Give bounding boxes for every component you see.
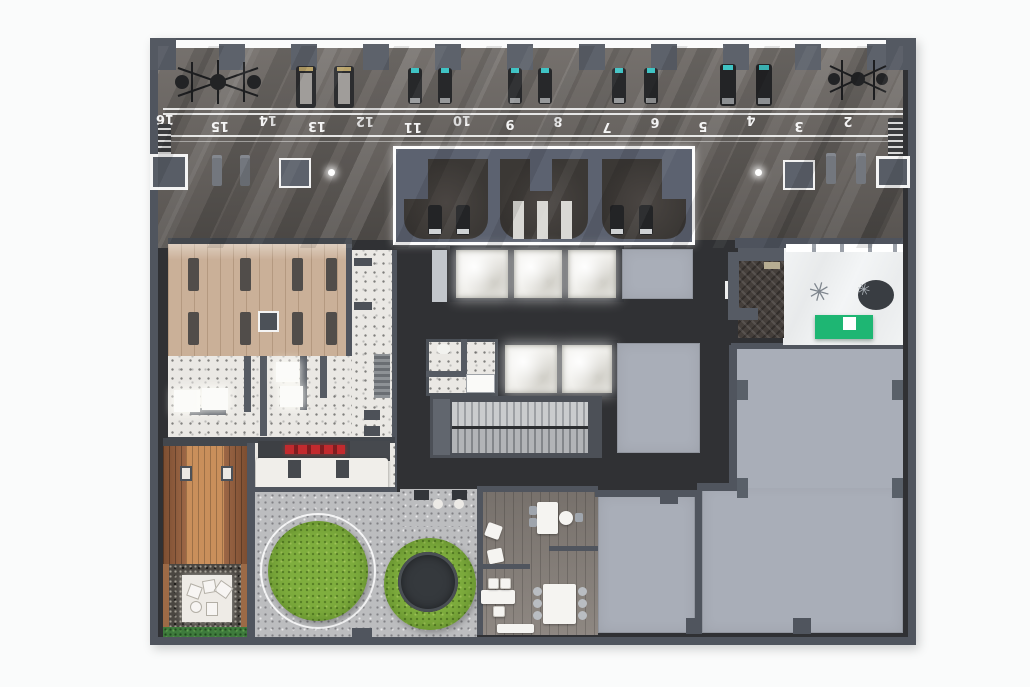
lane-number: 15 [209,118,231,133]
desk-chair [493,606,505,617]
wall-pilaster [892,478,903,498]
facade-pier [651,44,677,70]
lounge-partition [483,564,530,569]
spin-bike-icon [428,205,442,235]
bench-slot [326,312,337,345]
shower-room-wall [461,339,467,374]
lounge-chair-sketch [186,583,203,600]
glazing-mullion [812,244,816,252]
glazing-mullion [868,244,872,252]
deck-center-boards [186,446,224,564]
bench-slot [240,312,251,345]
lane-number: 4 [740,112,762,127]
corridor-bench [354,258,372,266]
vestibule-wall-foot [728,308,758,320]
deck-notch [221,466,233,481]
elevator-car [505,345,557,393]
outdoor-lounge-rug [182,575,232,622]
lease-space-small [598,495,695,633]
corridor-bench [364,410,380,420]
weight-bench-icon [856,156,866,184]
door-leaf [432,250,447,302]
shower-tray [466,374,495,393]
hedge-strip [163,627,249,637]
conference-chair [533,587,542,596]
exercise-mat [513,201,524,239]
facade-corner-right [886,38,916,70]
ceiling-light-dot [328,169,335,176]
lane-number: 5 [692,118,714,133]
wall-pilaster [737,478,748,498]
lounge-left-wall [477,489,483,635]
lease-space-large-upper [735,348,903,488]
bar-counter-leg [288,460,301,478]
door-leaf [725,281,728,299]
planter-box [414,490,429,500]
track-line [163,141,903,142]
lounge-chair-sketch [206,602,218,616]
toilet-icon [437,344,450,354]
glazing-mullion [893,244,897,252]
bench-slot [326,258,337,291]
lease-top-wall [595,490,698,497]
desk-chair [488,578,499,589]
work-desk [481,590,515,604]
chair [529,506,537,515]
stair-flight-down [452,429,588,453]
elevator-car [514,250,562,298]
stair-landing [433,399,450,455]
wall-alcove [876,156,910,188]
facade-pier [507,44,533,70]
bar-stool-row [285,445,345,454]
conference-chair [533,599,542,608]
lounge-chair-sketch [214,580,234,599]
lane-number: 8 [547,113,569,128]
exercise-mat [561,201,572,239]
conference-chair [578,611,587,620]
bench-slot [188,312,199,345]
chair [575,513,583,522]
credenza [497,624,534,633]
facade-pier [795,44,821,70]
lease-upper-left-wall [729,345,737,488]
lane-number: 2 [837,113,859,128]
weight-bench-icon [826,156,836,184]
studio-wall-block [530,159,552,191]
service-room [622,249,693,299]
vestibule-floor [738,260,784,338]
lease-space-large [702,485,903,633]
studio-wall-block [662,159,686,199]
facade-pier [435,44,461,70]
lawn-circle-large [268,521,368,621]
lounge-top-wall [477,486,598,492]
spin-bike-icon [639,205,653,235]
lane-number: 13 [306,118,328,133]
lane-number: 12 [354,113,376,128]
wall-pilaster [660,490,678,504]
cycling-studio [393,146,695,245]
lifting-platform [783,160,815,190]
lounge-chair-sketch [188,599,205,616]
vanity-counter [202,388,228,410]
weight-bench-icon [212,158,222,186]
locker-partition [244,356,251,412]
lounge-partition [549,546,598,551]
corridor-bench [354,302,372,310]
corridor-bench [364,426,380,436]
outdoor-stool [433,499,443,509]
bench-slot [292,258,303,291]
deck-notch [180,466,192,481]
cafe-table [537,502,558,534]
desk-chair [500,578,511,589]
wall-alcove [150,154,188,190]
chair [529,518,537,527]
elevator-car [456,250,508,298]
stairwell [430,396,602,458]
reception-desk [815,315,873,339]
lane-number: 14 [257,112,279,127]
studio-wall-block [404,159,428,199]
wall-pilaster [793,618,811,634]
mechanical-room [617,343,700,453]
lane-number: 6 [644,114,666,129]
conference-chair [578,599,587,608]
lease-divider-wall [695,490,702,633]
locker-partition [320,356,327,398]
corridor-steps [374,354,390,398]
bench-slot [240,258,251,291]
ceiling-light-dot [755,169,762,176]
bench-slot [292,312,303,345]
desk-monitor [843,317,856,330]
elevator-car [562,345,612,393]
floor-plan-canvas: 16 15 14 13 12 11 10 9 8 7 6 5 4 3 2 [0,0,1030,687]
conference-chair [533,611,542,620]
facade-pier [363,44,389,70]
spin-bike-icon [456,205,470,235]
weight-bench-icon [240,158,250,186]
wall-pilaster [737,380,748,400]
floor-box [258,311,279,332]
outdoor-stool [454,499,464,509]
lane-number: 7 [596,119,618,134]
wall-pilaster [892,380,903,400]
lobby-entry-glazing [786,244,903,252]
terrace-right-wall [247,443,255,637]
conference-table [543,584,576,624]
shower-room-wall [426,371,466,377]
track-line [163,108,903,110]
doormat [764,262,780,269]
wall-pilaster [686,618,702,634]
lane-number: 9 [499,116,521,131]
vestibule-wall-top [738,248,784,261]
shower-room [426,339,498,396]
garden-wall-tab [352,628,372,640]
deck-edge [163,564,169,628]
climbing-ladder-icon [888,118,903,160]
bar-counter-top [256,458,388,490]
round-table [559,511,573,525]
facade-pier [579,44,605,70]
stair-flight-up [452,402,588,426]
vanity-counter [280,386,303,407]
lane-number: 10 [451,112,473,127]
glazing-mullion [840,244,844,252]
bench-slot [188,258,199,291]
trampoline-circle [398,552,458,612]
lifting-platform [279,158,311,188]
lane-number: 3 [788,118,810,133]
conference-chair [578,587,587,596]
bar-counter-leg [336,460,349,478]
elevator-car [568,250,616,298]
vanity-counter [174,390,200,412]
locker-partition [260,356,267,436]
lane-number: 11 [402,119,424,134]
exercise-mat [537,201,548,239]
track-line [163,135,903,137]
spin-bike-icon [610,205,624,235]
vanity-counter [276,362,299,382]
